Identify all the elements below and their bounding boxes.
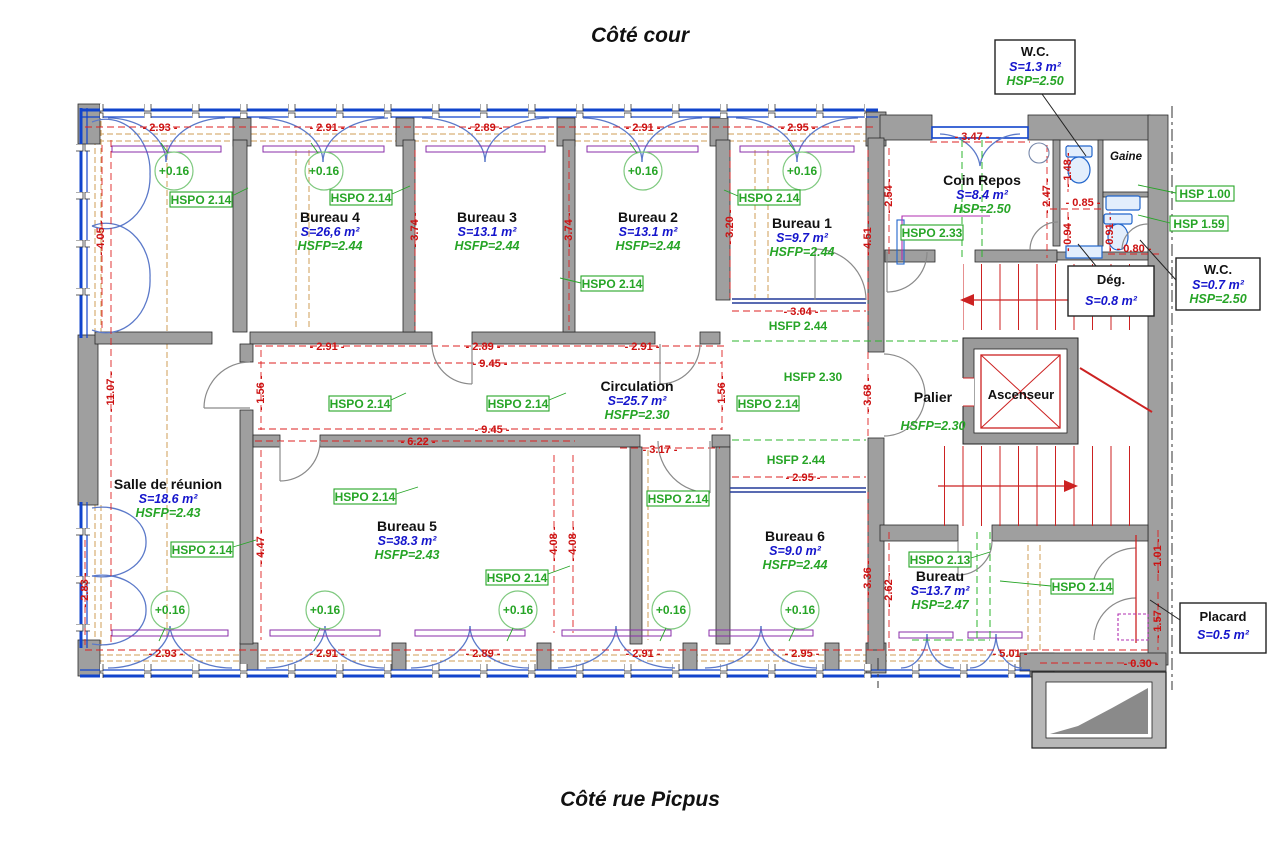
hspo-text: HSPO 2.14 bbox=[487, 571, 548, 585]
room-area: S=9.7 m² bbox=[776, 231, 829, 245]
floor-plan-drawing: +0.16 +0.16 +0.16 +0.16 +0.16 +0.16 +0.1… bbox=[0, 0, 1280, 847]
hspo-text: HSPO 2.14 bbox=[330, 397, 391, 411]
title-street-side: Côté rue Picpus bbox=[560, 788, 720, 811]
dim-text: - 2.89 - bbox=[466, 648, 501, 660]
dim-text: - 2.83 - bbox=[79, 572, 91, 607]
dim-text: - 3.47 - bbox=[955, 131, 990, 143]
dim-text: - 2.93 - bbox=[149, 648, 184, 660]
callout-height: HSP=2.50 bbox=[1006, 74, 1063, 88]
dim-text: - 3.36 - bbox=[862, 560, 874, 595]
room-height: HSFP=2.44 bbox=[298, 239, 363, 253]
hspo-text: HSPO 2.13 bbox=[910, 553, 971, 567]
dim-text: - 0.80 - bbox=[1117, 243, 1152, 255]
hsp-text: HSP 1.00 bbox=[1179, 187, 1230, 201]
room-name: Bureau 5 bbox=[377, 518, 437, 534]
dim-text: - 0.85 - bbox=[1066, 197, 1101, 209]
room-name-ascenseur: Ascenseur bbox=[988, 387, 1054, 402]
level-value: +0.16 bbox=[628, 164, 659, 178]
dim-text: - 2.95 - bbox=[786, 472, 821, 484]
room-label-bureau2: Bureau 2 S=13.1 m² HSFP=2.44 bbox=[616, 209, 681, 253]
hspo-label: HSPO 2.33 bbox=[901, 225, 963, 240]
hspo-text: HSPO 2.14 bbox=[172, 543, 233, 557]
level-value: +0.16 bbox=[310, 603, 341, 617]
dim-text: - 2.91 - bbox=[310, 341, 345, 353]
room-height: HSFP=2.30 bbox=[901, 419, 966, 433]
room-name: Coin Repos bbox=[943, 172, 1021, 188]
bottom-mullions bbox=[100, 664, 1030, 678]
dim-text: - 3.74 - bbox=[409, 212, 421, 247]
room-area: S=9.0 m² bbox=[769, 544, 822, 558]
top-mullions bbox=[100, 104, 866, 118]
hsfp-text: HSFP 2.44 bbox=[767, 453, 826, 467]
dim-text: - 2.93 - bbox=[143, 122, 178, 134]
room-label-circulation: Circulation S=25.7 m² HSFP=2.30 bbox=[600, 378, 673, 422]
callout-area: S=0.8 m² bbox=[1085, 294, 1138, 308]
room-area: S=13.7 m² bbox=[911, 584, 971, 598]
hsfp-text: HSFP 2.30 bbox=[784, 370, 843, 384]
room-height: HSP=2.50 bbox=[953, 202, 1010, 216]
dim-text: - 3.74 - bbox=[563, 212, 575, 247]
room-height: HSP=2.47 bbox=[911, 598, 969, 612]
level-value: +0.16 bbox=[787, 164, 818, 178]
room-name: Bureau 4 bbox=[300, 209, 360, 225]
dim-text: - 2.91 - bbox=[626, 122, 661, 134]
dim-text: - 2.62 - bbox=[883, 572, 895, 607]
room-label-bureau4: Bureau 4 S=26,6 m² HSFP=2.44 bbox=[298, 209, 363, 253]
dim-text: - 2.91 - bbox=[625, 341, 660, 353]
room-area: S=38.3 m² bbox=[378, 534, 438, 548]
room-name: Salle de réunion bbox=[114, 476, 222, 492]
room-height: HSFP=2.43 bbox=[136, 506, 201, 520]
dim-text: - 2.47 - bbox=[1041, 178, 1053, 213]
dim-text: - 2.89 - bbox=[466, 341, 501, 353]
hspo-text: HSPO 2.14 bbox=[335, 490, 396, 504]
dim-text: - 3.20 - bbox=[724, 209, 736, 244]
room-height: HSFP=2.44 bbox=[770, 245, 835, 259]
hspo-text: HSPO 2.14 bbox=[171, 193, 232, 207]
hspo-text: HSPO 2.14 bbox=[331, 191, 392, 205]
hsp-text: HSP 1.59 bbox=[1173, 217, 1224, 231]
room-name: Circulation bbox=[600, 378, 673, 394]
hspo-text: HSPO 2.14 bbox=[1052, 580, 1113, 594]
level-value: +0.16 bbox=[309, 164, 340, 178]
dim-text: - 2.91 - bbox=[626, 648, 661, 660]
room-height: HSFP=2.43 bbox=[375, 548, 440, 562]
room-name: Palier bbox=[914, 389, 953, 405]
room-area: S=25.7 m² bbox=[608, 394, 668, 408]
callout-area: S=0.7 m² bbox=[1192, 278, 1245, 292]
dim-text: - 2.54 - bbox=[883, 178, 895, 213]
dim-text: - 9.45 - bbox=[475, 424, 510, 436]
room-height: HSFP=2.30 bbox=[605, 408, 670, 422]
room-name: Bureau bbox=[916, 568, 964, 584]
room-label-bureau-sud: Bureau S=13.7 m² HSP=2.47 bbox=[911, 568, 971, 612]
dim-text: - 2.89 - bbox=[468, 122, 503, 134]
room-height: HSFP=2.44 bbox=[616, 239, 681, 253]
callout-area: S=0.5 m² bbox=[1197, 628, 1250, 642]
room-area: S=13.1 m² bbox=[619, 225, 679, 239]
hspo-text: HSPO 2.14 bbox=[582, 277, 643, 291]
hspo-text: HSPO 2.33 bbox=[902, 226, 963, 240]
dim-text: - 1.48 - bbox=[1062, 152, 1074, 187]
room-label-bureau3: Bureau 3 S=13.1 m² HSFP=2.44 bbox=[455, 209, 520, 253]
room-name: Bureau 6 bbox=[765, 528, 825, 544]
dim-text: - 5.01 - bbox=[993, 648, 1028, 660]
dim-text: - 3.04 - bbox=[784, 306, 819, 318]
hspo-text: HSPO 2.14 bbox=[738, 397, 799, 411]
room-area: S=13.1 m² bbox=[458, 225, 518, 239]
callout-name: Placard bbox=[1200, 609, 1247, 624]
dim-text: - 1.01 - bbox=[1152, 538, 1164, 573]
room-height: HSFP=2.44 bbox=[763, 558, 828, 572]
hspo-text: HSPO 2.14 bbox=[739, 191, 800, 205]
room-label-bureau6: Bureau 6 S=9.0 m² HSFP=2.44 bbox=[763, 528, 828, 572]
room-label-bureau5: Bureau 5 S=38.3 m² HSFP=2.43 bbox=[375, 518, 440, 562]
dim-text: - 4.05 - bbox=[95, 220, 107, 255]
dim-text: - 6.22 - bbox=[401, 436, 436, 448]
dim-text: - 3.17 - bbox=[643, 444, 678, 456]
dim-text: - 9.45 - bbox=[473, 358, 508, 370]
dim-text: - 11.07 - bbox=[105, 371, 117, 412]
sink-icon bbox=[1106, 196, 1140, 210]
room-area: S=18.6 m² bbox=[139, 492, 199, 506]
dim-text: - 4.08 - bbox=[567, 526, 579, 561]
hspo-label: HSPO 2.14 bbox=[737, 396, 799, 411]
callout-name: W.C. bbox=[1021, 44, 1049, 59]
hspo-text: HSPO 2.14 bbox=[648, 492, 709, 506]
level-value: +0.16 bbox=[159, 164, 190, 178]
level-value: +0.16 bbox=[656, 603, 687, 617]
callout-area: S=1.3 m² bbox=[1009, 60, 1062, 74]
dim-text: - 2.95 - bbox=[785, 648, 820, 660]
callout-name: W.C. bbox=[1204, 262, 1232, 277]
room-area: S=8.4 m² bbox=[956, 188, 1009, 202]
dim-text: - 1.56 - bbox=[255, 375, 267, 410]
callout-height: HSP=2.50 bbox=[1189, 292, 1246, 306]
room-name-gaine: Gaine bbox=[1110, 151, 1143, 163]
dim-text: - 0.30 - bbox=[1124, 658, 1159, 670]
dim-text: - 4.47 - bbox=[255, 529, 267, 564]
level-value: +0.16 bbox=[155, 603, 186, 617]
room-label-bureau1: Bureau 1 S=9.7 m² HSFP=2.44 bbox=[770, 215, 835, 259]
room-name: Bureau 2 bbox=[618, 209, 678, 225]
floor-plan-page: +0.16 +0.16 +0.16 +0.16 +0.16 +0.16 +0.1… bbox=[0, 0, 1280, 847]
level-value: +0.16 bbox=[503, 603, 534, 617]
hspo-label: HSPO 2.14 bbox=[647, 491, 709, 506]
hspo-text: HSPO 2.14 bbox=[488, 397, 549, 411]
room-name: Bureau 1 bbox=[772, 215, 832, 231]
callout-name: Dég. bbox=[1097, 272, 1125, 287]
dim-text: - 1.56 - bbox=[716, 375, 728, 410]
dim-text: - 3.68 - bbox=[862, 377, 874, 412]
hsfp-text: HSFP 2.44 bbox=[769, 319, 828, 333]
title-court-side: Côté cour bbox=[591, 24, 691, 47]
room-height: HSFP=2.44 bbox=[455, 239, 520, 253]
dim-text: - 0.94 - bbox=[1062, 216, 1074, 251]
ramp-box bbox=[1032, 672, 1166, 748]
room-name: Bureau 3 bbox=[457, 209, 517, 225]
dim-text: - 2.95 - bbox=[781, 122, 816, 134]
dim-text: - 2.91 - bbox=[310, 648, 345, 660]
room-area: S=26,6 m² bbox=[301, 225, 361, 239]
dim-text: - 4.08 - bbox=[548, 526, 560, 561]
dim-text: - 2.91 - bbox=[310, 122, 345, 134]
left-mullions bbox=[76, 120, 90, 332]
dim-text: - 4.51 - bbox=[862, 220, 874, 255]
dim-text: - 0.91 - bbox=[1104, 216, 1116, 251]
level-value: +0.16 bbox=[785, 603, 816, 617]
